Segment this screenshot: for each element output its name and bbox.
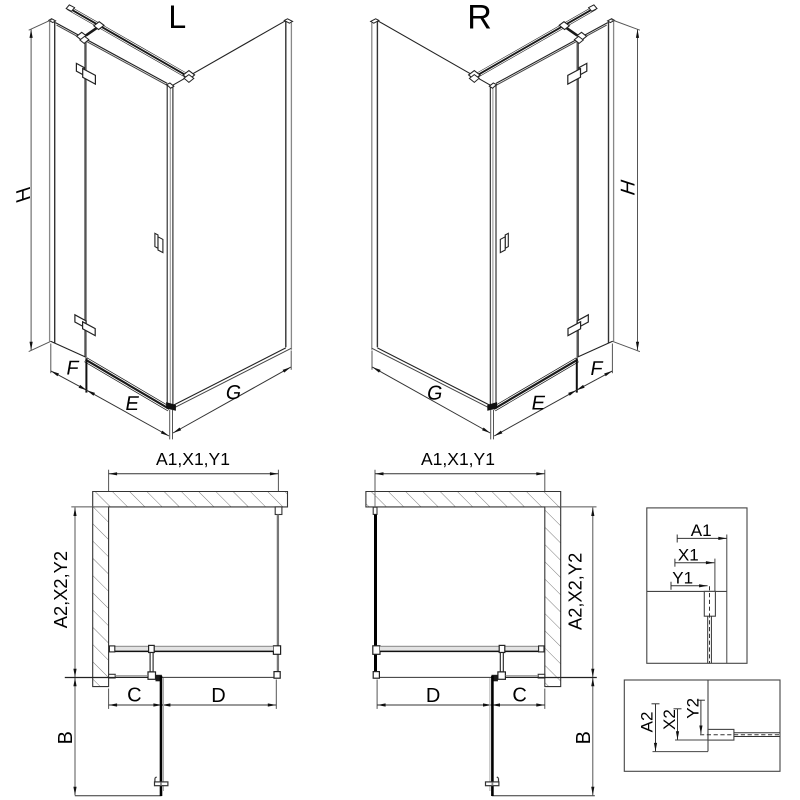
svg-text:B: B — [573, 731, 595, 744]
svg-text:A1,X1,Y1: A1,X1,Y1 — [156, 449, 230, 469]
svg-text:X2: X2 — [660, 709, 679, 730]
svg-text:C: C — [127, 685, 141, 707]
svg-text:Y2: Y2 — [684, 698, 703, 719]
svg-text:A1,X1,Y1: A1,X1,Y1 — [421, 449, 495, 469]
svg-text:L: L — [168, 0, 186, 35]
svg-text:B: B — [55, 731, 77, 744]
svg-text:A2,X2,Y2: A2,X2,Y2 — [50, 551, 71, 628]
svg-text:D: D — [211, 685, 225, 707]
svg-text:A2: A2 — [637, 712, 656, 733]
svg-text:A1: A1 — [691, 521, 712, 540]
svg-text:X1: X1 — [678, 546, 699, 565]
svg-text:C: C — [512, 685, 526, 707]
svg-text:D: D — [426, 685, 440, 707]
svg-text:Y1: Y1 — [672, 569, 693, 588]
svg-text:A2,X2,Y2: A2,X2,Y2 — [564, 553, 585, 630]
svg-text:R: R — [467, 0, 492, 36]
